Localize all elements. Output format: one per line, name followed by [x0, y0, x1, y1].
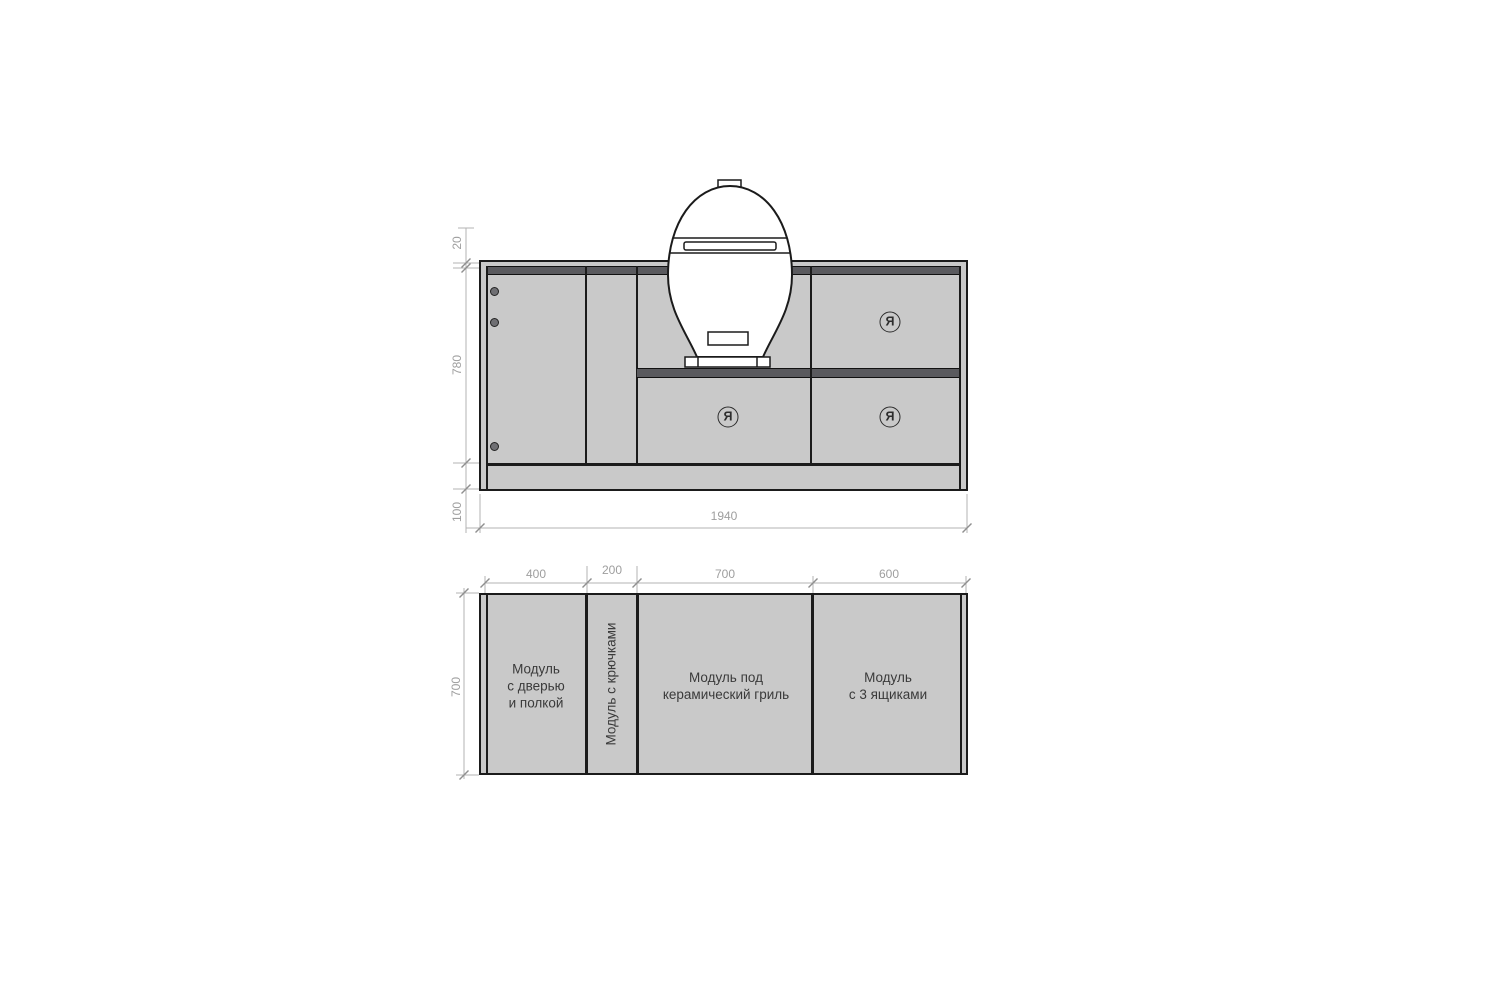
- drawer-module-band: [812, 368, 959, 378]
- dim-label-module-400: 400: [526, 568, 546, 580]
- dim-label-module-600: 600: [879, 568, 899, 580]
- door-hinge-dot: [490, 442, 499, 451]
- dim-label-total-width: 1940: [711, 510, 738, 522]
- plan-divider-3: [811, 595, 814, 773]
- dim-label-plinth: 100: [451, 502, 463, 522]
- plan-left-panel-line: [486, 595, 488, 773]
- grill-drawers-divider: [810, 266, 812, 463]
- dim-label-module-700: 700: [715, 568, 735, 580]
- grill-bottom-vent: [708, 332, 748, 345]
- door-hooks-divider: [585, 266, 587, 463]
- door-hinge-dot: [490, 318, 499, 327]
- furniture-technical-drawing: Я Я Я 20 780 100 1940 Модуль с дверью и: [0, 0, 1500, 1000]
- plan-divider-1: [585, 595, 588, 773]
- right-side-panel-line: [959, 266, 961, 463]
- hooks-grill-divider: [636, 266, 638, 463]
- plan-right-panel-line: [960, 595, 962, 773]
- plinth-notch-left: [486, 466, 488, 489]
- plinth-notch-right: [959, 466, 961, 489]
- brand-badge: Я: [880, 407, 901, 428]
- door-hinge-dot: [490, 287, 499, 296]
- dim-label-body-height: 780: [451, 355, 463, 375]
- brand-letter: Я: [886, 316, 895, 329]
- dim-label-countertop: 20: [451, 236, 463, 249]
- brand-letter: Я: [724, 411, 733, 424]
- dim-label-module-200: 200: [602, 564, 622, 576]
- ceramic-grill-icon: [650, 172, 810, 374]
- plan-module-drawers-label: Модуль с 3 ящиками: [849, 669, 927, 703]
- left-side-panel-line: [486, 266, 488, 463]
- plinth-top-line: [486, 463, 961, 466]
- brand-badge: Я: [718, 407, 739, 428]
- brand-badge: Я: [880, 312, 901, 333]
- brand-letter: Я: [886, 411, 895, 424]
- dim-label-depth: 700: [450, 677, 462, 697]
- plan-module-door-shelf-label: Модуль с дверью и полкой: [507, 661, 565, 712]
- grill-hinge-band: [684, 242, 776, 250]
- plan-module-hooks-label: Модуль с крючками: [603, 623, 620, 746]
- plan-divider-2: [636, 595, 639, 773]
- plan-module-grill-label: Модуль под керамический гриль: [663, 669, 789, 703]
- dimension-lines: [0, 0, 1500, 1000]
